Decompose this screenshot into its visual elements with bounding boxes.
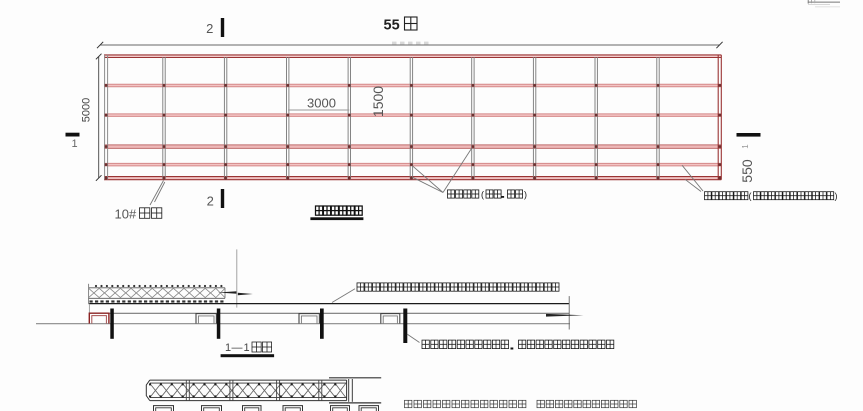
svg-text:2: 2 [206, 21, 213, 36]
svg-text:(: ( [749, 191, 752, 201]
svg-text:1: 1 [741, 144, 750, 149]
svg-text:55: 55 [384, 18, 400, 34]
svg-text:1500: 1500 [370, 86, 386, 117]
svg-text:): ) [524, 190, 527, 200]
svg-text:1: 1 [71, 138, 77, 150]
svg-text:1: 1 [225, 342, 231, 354]
svg-text:): ) [835, 191, 838, 201]
svg-text:5000: 5000 [81, 98, 93, 122]
svg-text:10#: 10# [115, 207, 137, 222]
svg-text:3000: 3000 [307, 96, 336, 111]
svg-text:2: 2 [207, 194, 214, 209]
svg-text:(: ( [481, 190, 484, 200]
svg-text:550: 550 [739, 159, 755, 183]
svg-text:1: 1 [244, 342, 250, 354]
svg-text:—: — [232, 342, 243, 354]
